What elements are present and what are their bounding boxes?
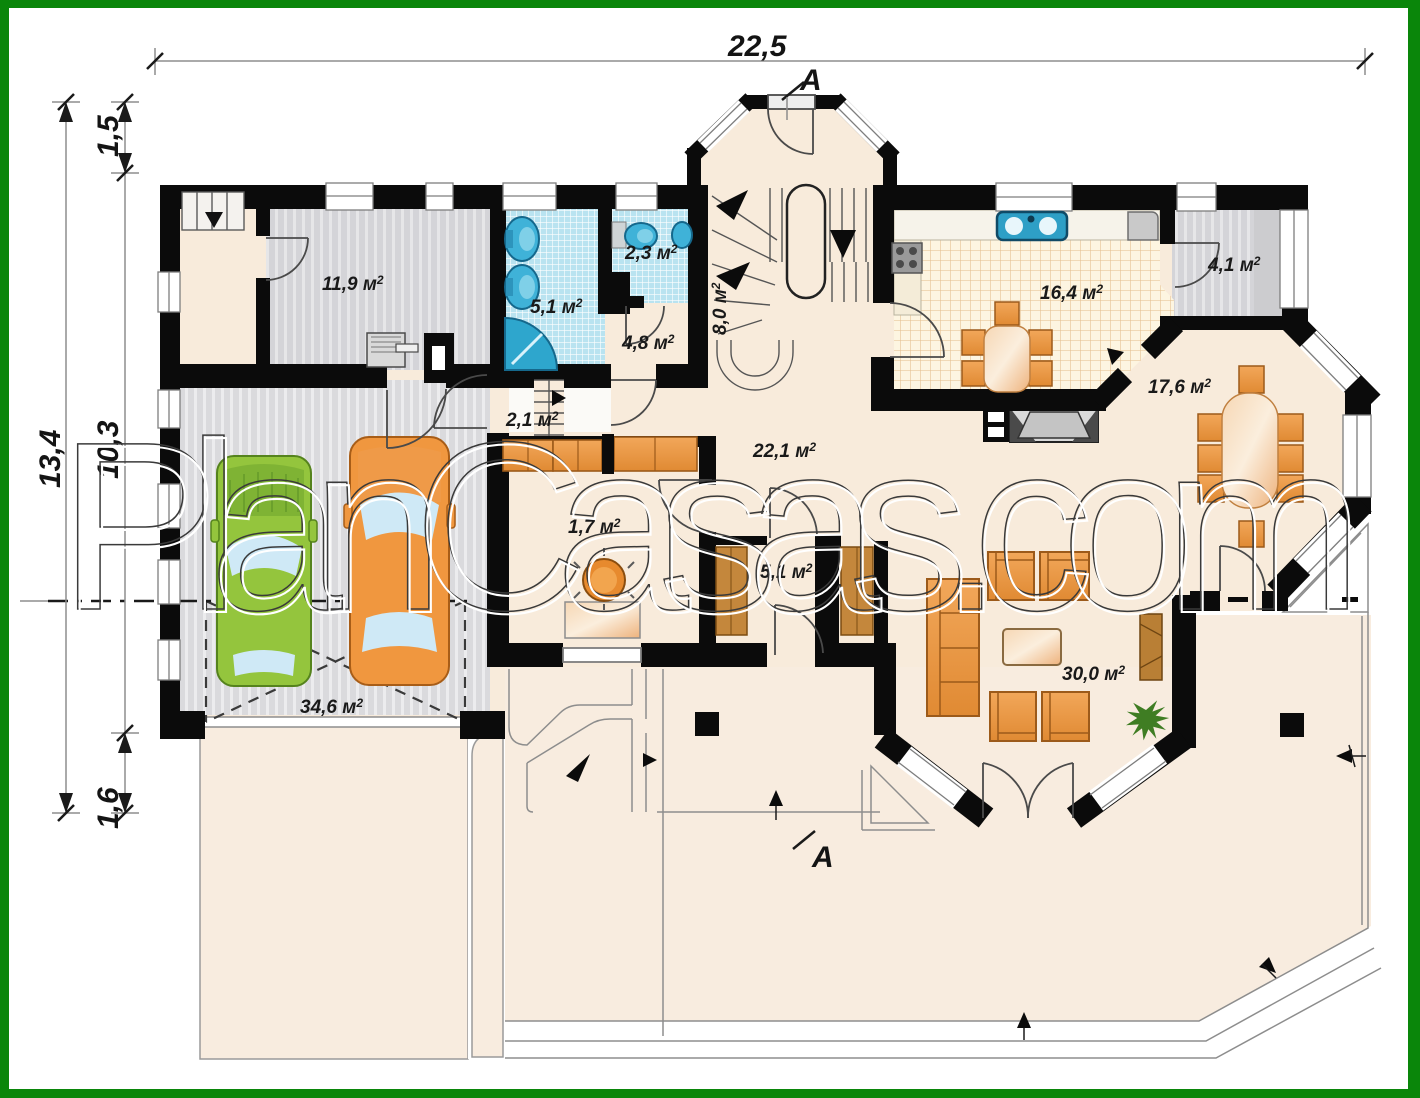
svg-text:34,6 м2: 34,6 м2 (300, 696, 363, 718)
svg-text:30,0 м2: 30,0 м2 (1062, 663, 1125, 685)
svg-text:22,5: 22,5 (727, 30, 788, 63)
svg-text:1,5: 1,5 (92, 114, 125, 157)
svg-text:A: A (799, 64, 822, 97)
svg-text:5,1 м2: 5,1 м2 (530, 296, 583, 318)
svg-text:A: A (811, 841, 834, 874)
svg-text:16,4 м2: 16,4 м2 (1040, 282, 1103, 304)
svg-text:8,0 м2: 8,0 м2 (709, 282, 731, 335)
svg-text:2,3 м2: 2,3 м2 (624, 242, 678, 264)
svg-text:4,8 м2: 4,8 м2 (621, 332, 675, 354)
svg-text:11,9 м2: 11,9 м2 (322, 273, 384, 295)
svg-text:4,1 м2: 4,1 м2 (1207, 254, 1261, 276)
svg-text:PlanCasas.com: PlanCasas.com (60, 395, 1365, 663)
svg-text:1,6: 1,6 (92, 787, 125, 829)
